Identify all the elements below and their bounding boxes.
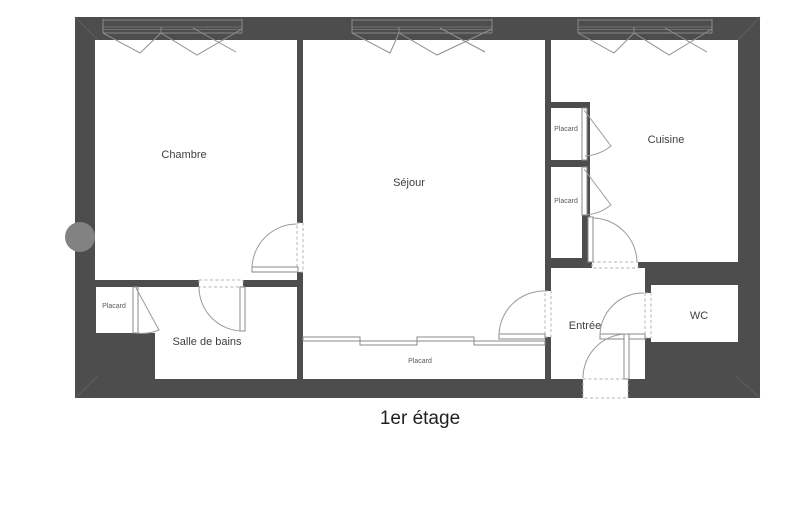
- room-label-cuisine: Cuisine: [648, 134, 685, 146]
- room-label-wc: WC: [690, 310, 708, 322]
- opening-entrance: [583, 379, 628, 398]
- closet-column-bottom: [551, 167, 582, 258]
- column-circle: [65, 222, 95, 252]
- opening-wc: [645, 293, 651, 338]
- floor-plan-drawing: Chambre Séjour Cuisine Salle de bains En…: [0, 0, 800, 524]
- room-label-entree: Entrée: [569, 320, 601, 332]
- closet-left: [96, 287, 133, 333]
- room-label-salle-de-bains: Salle de bains: [172, 336, 242, 348]
- closet-label-column-bottom: Placard: [554, 198, 578, 205]
- floor-plan-page: Chambre Séjour Cuisine Salle de bains En…: [0, 0, 800, 524]
- room-label-sejour: Séjour: [393, 177, 425, 189]
- closet-column-top: [551, 108, 582, 160]
- room-label-chambre: Chambre: [161, 149, 206, 161]
- opening-salle-de-bains: [199, 280, 243, 287]
- plan-title: 1er étage: [380, 408, 460, 429]
- room-salle-de-bains: [138, 287, 297, 379]
- opening-cuisine: [592, 262, 638, 268]
- closet-label-sejour-wall: Placard: [408, 358, 432, 365]
- opening-chambre: [297, 223, 303, 272]
- opening-sejour-entree: [545, 291, 551, 337]
- closet-label-left: Placard: [102, 303, 126, 310]
- closet-label-column-top: Placard: [554, 126, 578, 133]
